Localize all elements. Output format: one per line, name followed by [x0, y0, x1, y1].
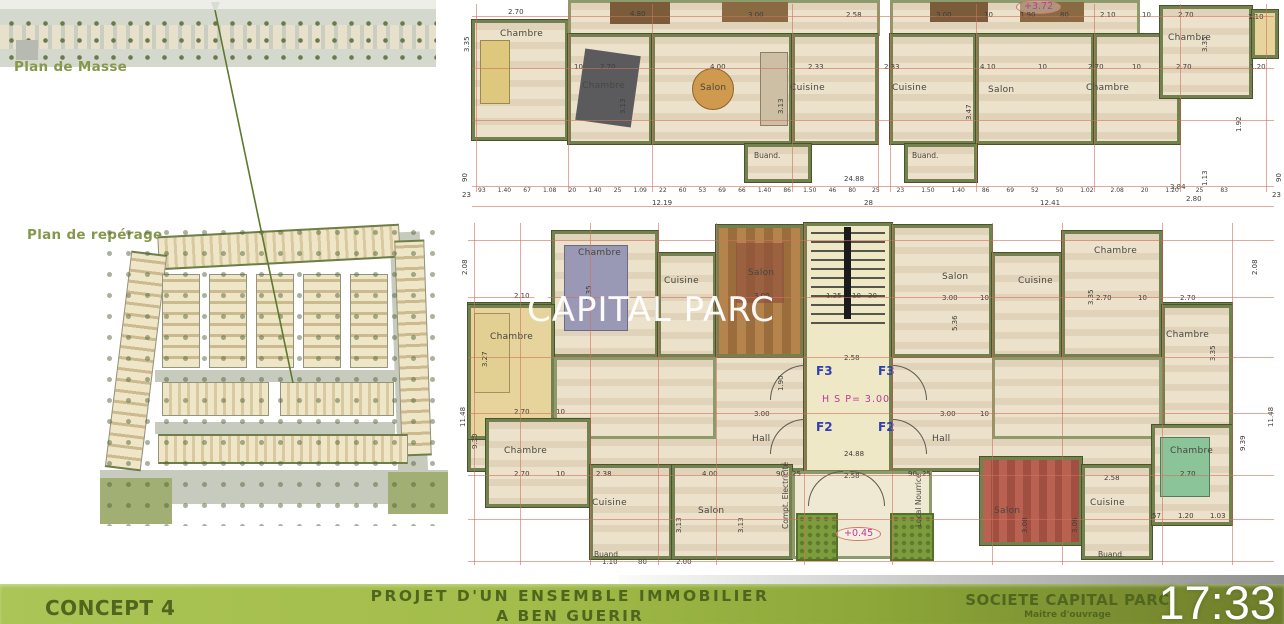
dimension-line [658, 223, 659, 565]
rm-label: Chambre [582, 82, 625, 91]
dimension-line [474, 223, 475, 565]
rm-label: Chambre [1094, 247, 1137, 256]
dim-label: 2.58 [1104, 475, 1120, 482]
upper-floor-plan: ChambreChambreSalonCuisineBuand.CuisineS… [460, 0, 1284, 212]
rm-label: Cuisine [664, 277, 699, 286]
dimension-line [1266, 4, 1267, 192]
rm-label: Chambre [578, 249, 621, 258]
project-title-block: PROJET D'UN ENSEMBLE IMMOBILIER A BEN GU… [330, 587, 810, 624]
dim-label: 9.39 [1240, 435, 1247, 451]
dim-chain: 931.40671.08201.40251.0922605369661.4086… [478, 188, 856, 194]
presentation-slide: Plan de Masse Plan de repérage [0, 0, 1284, 624]
dim-label: 24.88 [844, 451, 864, 458]
rm-label: Cuisine [1018, 277, 1053, 286]
plan-de-reperage-map [100, 222, 448, 526]
rm-label: Chambre [500, 30, 543, 39]
dim-label: 23 [462, 192, 471, 199]
rm-label: Salon [942, 273, 968, 282]
dimension-line [1232, 223, 1233, 565]
dim-label: 90 [1276, 173, 1283, 182]
dimension-line [568, 4, 569, 192]
rm-label: Chambre [1086, 84, 1129, 93]
dimension-line [892, 223, 893, 565]
dim-label: 3.35 [464, 36, 471, 52]
oval-label: +0.45 [836, 527, 881, 541]
capital-parc-watermark: CAPITAL PARC [527, 290, 775, 330]
dim-label: 23 [1272, 192, 1281, 199]
dimension-line [468, 240, 1274, 241]
dim-label: 1.90 [778, 375, 785, 391]
dimension-line [652, 4, 653, 192]
ground-floor-plan: ChambreCuisineSalonChambreSalonCuisineCh… [460, 213, 1284, 573]
dim-label: 3.13 [778, 98, 785, 114]
company-name: SOCIETE CAPITAL PARC [945, 591, 1190, 609]
rm-label: Chambre [1170, 447, 1213, 456]
unit-label: F3 [816, 365, 833, 377]
dimension-line [792, 4, 793, 192]
dim-label: 3.47 [966, 104, 973, 120]
dim-label: 2.70 [508, 9, 524, 16]
mag-label: H S P= 3.00 [822, 395, 890, 405]
dimension-line [1162, 223, 1163, 565]
dim-label: 2.08 [462, 259, 469, 275]
dimension-line [468, 561, 1274, 562]
rm-label: Salon [748, 269, 774, 278]
dimension-line [1180, 4, 1181, 192]
unit-label: F2 [816, 421, 833, 433]
dimension-line [472, 120, 1274, 121]
dimension-line [468, 519, 1274, 520]
rm-label: Salon [700, 84, 726, 93]
dimension-line [476, 4, 477, 192]
plan-de-masse-label: Plan de Masse [14, 59, 127, 75]
dimension-line [1062, 223, 1063, 565]
dimension-line [468, 413, 1274, 414]
dim-label: 3.27 [482, 351, 489, 367]
dim-label: 1.13 [1202, 170, 1209, 186]
dimension-line [472, 16, 1274, 17]
trees-overlay [100, 222, 448, 526]
upper-plan-labels: ChambreChambreSalonCuisineBuand.CuisineS… [460, 0, 1284, 212]
dimension-line [890, 4, 891, 192]
dimension-line [468, 475, 1274, 476]
dim-label: 11.48 [1268, 407, 1275, 427]
rm-label: Salon [994, 507, 1020, 516]
project-title: PROJET D'UN ENSEMBLE IMMOBILIER [330, 587, 810, 605]
masse-plan-margin [0, 0, 436, 9]
dimension-line [1094, 4, 1095, 192]
dim-label: 2.08 [1252, 259, 1259, 275]
company-block: SOCIETE CAPITAL PARC Maitre d'ouvrage [945, 591, 1190, 620]
dimension-line [472, 186, 1274, 187]
dim-label: 3.13 [620, 98, 627, 114]
rm-label: Hall [752, 435, 770, 444]
system-clock: 17:33 [1158, 581, 1276, 624]
dim-label: 5.36 [952, 315, 959, 331]
dimension-line [992, 223, 993, 565]
dim-chain: 25231.501.40866952501.022.08201.202583 [872, 188, 1228, 194]
rm-label: Cuisine [1090, 499, 1125, 508]
project-subtitle: A BEN GUERIR [330, 607, 810, 624]
dimension-line [878, 4, 879, 192]
dim-label: 2.80 [1186, 196, 1202, 203]
rm-label: Cuisine [790, 84, 825, 93]
rm-label: Chambre [504, 447, 547, 456]
masse-plan-block [16, 40, 38, 60]
dimension-line [716, 223, 717, 565]
dim-label: 1.92 [1236, 116, 1243, 132]
rm-label: Salon [988, 86, 1014, 95]
company-role: Maitre d'ouvrage [945, 610, 1190, 620]
dim-label: 11.48 [460, 407, 467, 427]
rm-label: Chambre [1166, 331, 1209, 340]
concept-label: CONCEPT 4 [45, 596, 175, 620]
dimension-line [468, 357, 1274, 358]
dim-label: 24.88 [844, 176, 864, 183]
rm2-label: Buand. [1098, 551, 1124, 559]
dim-label: 3.35 [1202, 36, 1209, 52]
dimension-line [472, 68, 1274, 69]
dimension-line [590, 223, 591, 565]
rm-label: Chambre [490, 333, 533, 342]
left-panel: Plan de Masse Plan de repérage [0, 0, 460, 584]
dimension-line [976, 4, 977, 192]
rm-label: Cuisine [892, 84, 927, 93]
rm-label: Hall [932, 435, 950, 444]
rm-label: Salon [698, 507, 724, 516]
dimension-line [804, 223, 805, 565]
dim-label: 3.35 [1210, 345, 1217, 361]
dim-label: 90 [462, 173, 469, 182]
rm2-label: Buand. [912, 152, 938, 160]
dimension-line [520, 223, 521, 565]
rm2-label: Buand. [754, 152, 780, 160]
rm-label: Cuisine [592, 499, 627, 508]
dimension-line [472, 206, 1274, 207]
title-bar: CONCEPT 4 PROJET D'UN ENSEMBLE IMMOBILIE… [0, 584, 1284, 624]
